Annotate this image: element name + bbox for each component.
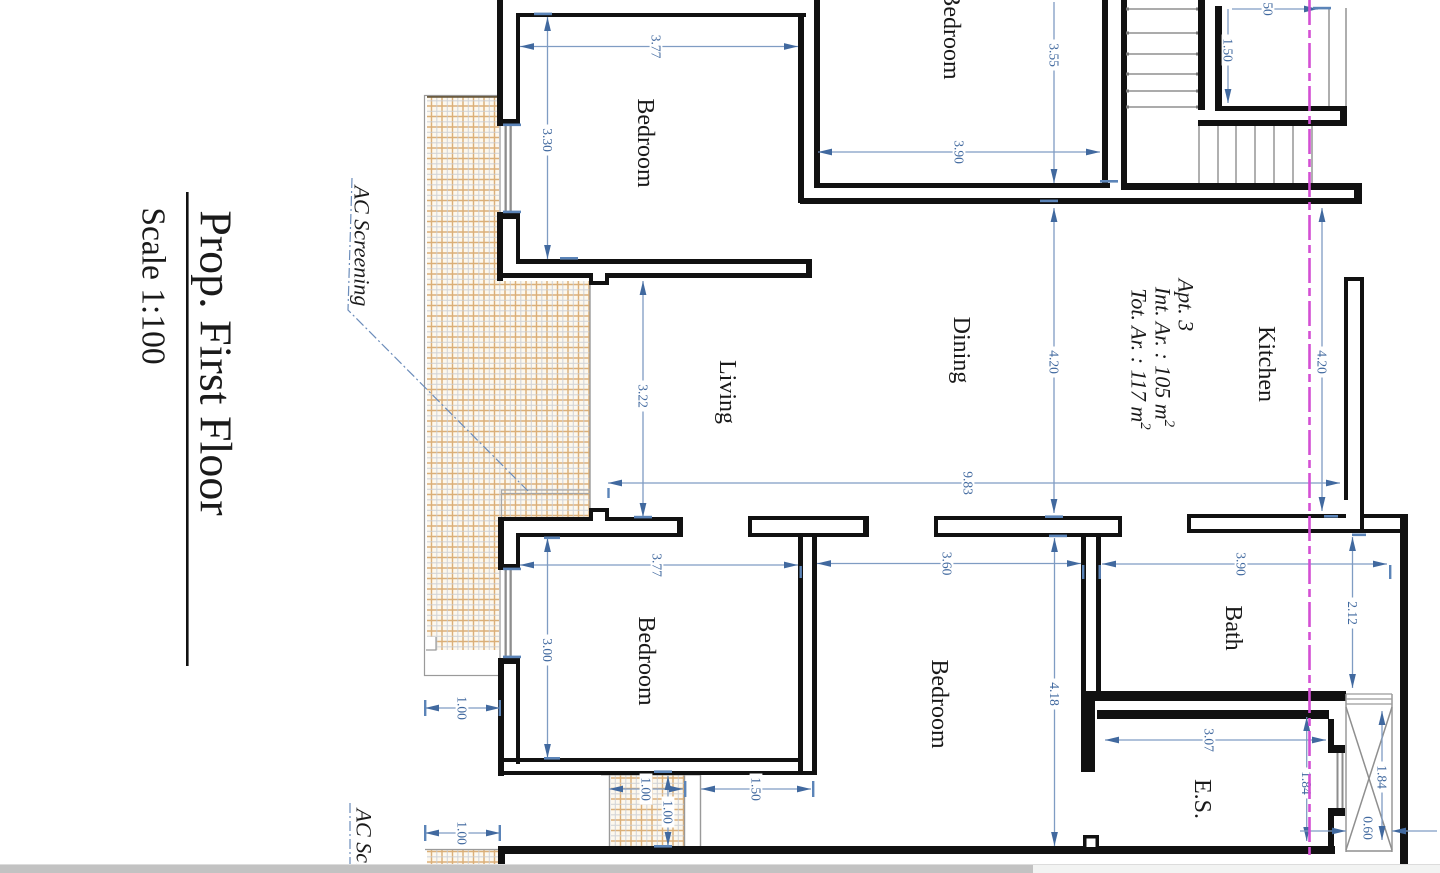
svg-text:9.83: 9.83	[961, 471, 976, 495]
svg-text:1.84: 1.84	[1299, 771, 1314, 795]
svg-text:3.60: 3.60	[940, 552, 955, 576]
svg-text:3.22: 3.22	[636, 384, 651, 408]
svg-text:AC Screening: AC Screening	[350, 184, 375, 307]
svg-text:Dining: Dining	[948, 317, 974, 384]
svg-text:0.60: 0.60	[1361, 816, 1376, 840]
svg-text:1.00: 1.00	[455, 696, 470, 720]
svg-text:Int. Ar. : 105 m2: Int. Ar. : 105 m2	[1151, 286, 1178, 428]
svg-text:Bedroom: Bedroom	[926, 659, 952, 749]
svg-text:Bedroom: Bedroom	[633, 616, 659, 706]
svg-text:3.07: 3.07	[1202, 728, 1217, 752]
svg-text:Prop. First Floor: Prop. First Floor	[191, 210, 242, 515]
svg-text:E.S.: E.S.	[1189, 779, 1215, 819]
svg-text:1.00: 1.00	[455, 821, 470, 845]
svg-text:3.90: 3.90	[952, 140, 967, 164]
svg-text:Apt. 3: Apt. 3	[1174, 277, 1199, 332]
svg-text:3.77: 3.77	[649, 35, 664, 59]
svg-text:3.00: 3.00	[540, 638, 555, 662]
svg-text:1.00: 1.00	[661, 800, 676, 824]
svg-text:Bedroom: Bedroom	[632, 98, 658, 188]
svg-text:4.20: 4.20	[1315, 350, 1330, 374]
svg-text:AC Screening: AC Screening	[352, 807, 377, 873]
svg-text:3.30: 3.30	[540, 128, 555, 152]
svg-text:Scale 1:100: Scale 1:100	[135, 207, 172, 364]
svg-text:1.50: 1.50	[749, 777, 764, 801]
svg-text:Bedroom: Bedroom	[938, 0, 964, 80]
svg-text:3.90: 3.90	[1234, 552, 1249, 576]
svg-text:3.55: 3.55	[1047, 43, 1062, 67]
svg-text:4.18: 4.18	[1047, 682, 1062, 706]
svg-text:4.20: 4.20	[1047, 350, 1062, 374]
svg-text:2.12: 2.12	[1345, 601, 1360, 625]
svg-text:1.84: 1.84	[1375, 765, 1390, 789]
svg-text:1.50: 1.50	[1221, 38, 1236, 62]
svg-text:Kitchen: Kitchen	[1253, 326, 1279, 402]
svg-text:Living: Living	[714, 360, 740, 424]
svg-text:50: 50	[1261, 2, 1276, 16]
svg-text:Tot. Ar. : 117 m2: Tot. Ar. : 117 m2	[1127, 288, 1154, 430]
svg-text:Bath: Bath	[1220, 605, 1246, 650]
svg-text:3.77: 3.77	[650, 553, 665, 577]
svg-text:1.00: 1.00	[639, 777, 654, 801]
